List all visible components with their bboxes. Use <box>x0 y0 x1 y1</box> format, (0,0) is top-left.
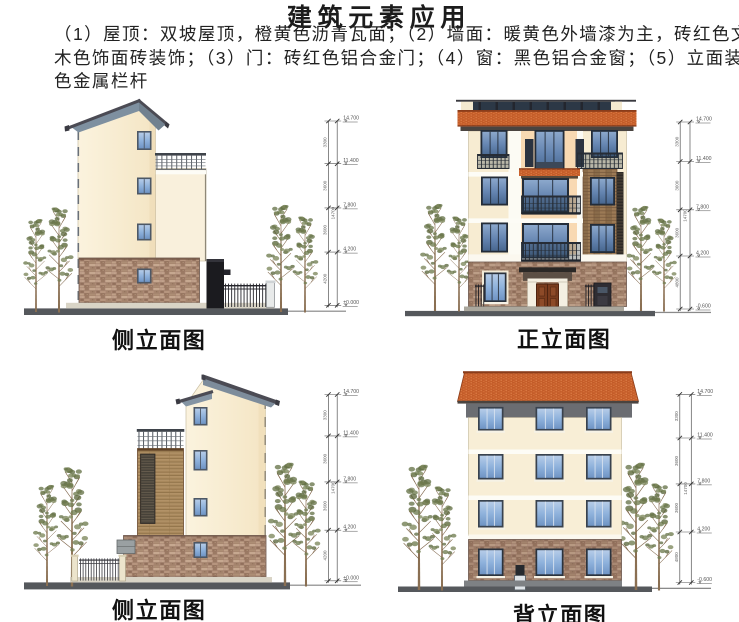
svg-text:14700: 14700 <box>330 481 335 494</box>
svg-text:14.700: 14.700 <box>343 389 359 395</box>
svg-text:3300: 3300 <box>323 137 328 148</box>
svg-text:14700: 14700 <box>683 482 688 495</box>
svg-text:±0.000: ±0.000 <box>343 300 359 306</box>
svg-text:14.700: 14.700 <box>697 389 713 395</box>
svg-text:3600: 3600 <box>323 453 328 464</box>
svg-text:11.400: 11.400 <box>697 433 713 439</box>
svg-text:4200: 4200 <box>323 273 328 284</box>
svg-text:4800: 4800 <box>674 552 679 563</box>
svg-text:4800: 4800 <box>674 277 679 288</box>
svg-text:3600: 3600 <box>674 227 679 238</box>
svg-text:-0.600: -0.600 <box>697 577 712 583</box>
svg-text:3600: 3600 <box>323 501 328 512</box>
svg-text:14700: 14700 <box>330 206 335 219</box>
svg-text:3300: 3300 <box>323 410 328 421</box>
svg-text:11.400: 11.400 <box>343 430 359 436</box>
svg-text:3600: 3600 <box>674 180 679 191</box>
svg-text:3600: 3600 <box>674 455 679 466</box>
svg-text:-0.600: -0.600 <box>696 304 711 310</box>
svg-text:3600: 3600 <box>323 180 328 191</box>
svg-text:14.700: 14.700 <box>343 116 359 122</box>
svg-text:3600: 3600 <box>674 502 679 513</box>
svg-text:4200: 4200 <box>323 550 328 561</box>
svg-text:±0.000: ±0.000 <box>343 575 359 581</box>
svg-text:3300: 3300 <box>674 411 679 422</box>
svg-text:11.400: 11.400 <box>696 156 712 162</box>
svg-text:11.400: 11.400 <box>343 158 359 164</box>
svg-text:3600: 3600 <box>323 224 328 235</box>
svg-text:3300: 3300 <box>674 136 679 147</box>
svg-text:14700: 14700 <box>683 209 688 222</box>
svg-text:14.700: 14.700 <box>696 117 712 123</box>
